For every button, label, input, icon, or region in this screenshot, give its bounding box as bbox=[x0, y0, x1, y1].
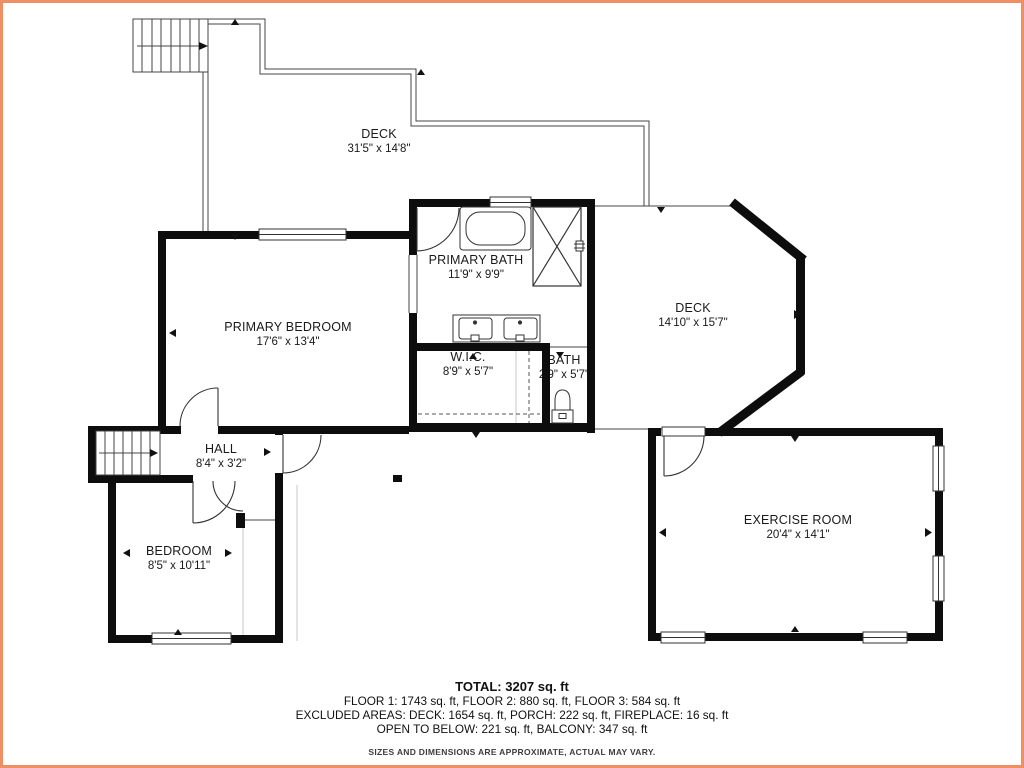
room-label-exercise-room: EXERCISE ROOM 20'4" x 14'1" bbox=[744, 513, 852, 543]
interior-lines bbox=[243, 255, 587, 641]
open-below-areas: OPEN TO BELOW: 221 sq. ft, BALCONY: 347 … bbox=[3, 722, 1021, 736]
room-label-bedroom: BEDROOM 8'5" x 10'11" bbox=[146, 544, 212, 574]
window-icon bbox=[259, 229, 346, 240]
bathtub-icon bbox=[460, 207, 531, 250]
deck-outline bbox=[133, 19, 734, 429]
room-label-deck-right: DECK 14'10" x 15'7" bbox=[658, 301, 727, 331]
stairs-icon bbox=[133, 19, 208, 72]
door-arc-icon bbox=[416, 208, 459, 251]
room-label-wic: W.I.C. 8'9" x 5'7" bbox=[443, 350, 493, 380]
room-name: DECK bbox=[658, 301, 727, 316]
door-arc-icon bbox=[213, 481, 243, 511]
window-icon bbox=[933, 446, 944, 491]
floorplan-drawing bbox=[3, 3, 1024, 768]
door-arc-icon bbox=[180, 388, 218, 426]
room-dims: 14'10" x 15'7" bbox=[658, 316, 727, 331]
room-name: BATH bbox=[539, 353, 589, 368]
door-arc-icon bbox=[193, 481, 235, 523]
window-icon bbox=[661, 632, 705, 643]
room-label-deck-top: DECK 31'5" x 14'8" bbox=[347, 127, 410, 157]
area-summary: TOTAL: 3207 sq. ft FLOOR 1: 1743 sq. ft,… bbox=[3, 679, 1021, 736]
door-arc-icon bbox=[662, 427, 705, 476]
stairs-icon bbox=[96, 431, 160, 475]
disclaimer-text: SIZES AND DIMENSIONS ARE APPROXIMATE, AC… bbox=[3, 747, 1021, 757]
room-dims: 11'9" x 9'9" bbox=[429, 268, 524, 283]
room-name: HALL bbox=[196, 442, 246, 457]
window-icon bbox=[863, 632, 907, 643]
fireplace-marker-icon bbox=[393, 475, 402, 482]
room-name: BEDROOM bbox=[146, 544, 212, 559]
floor-areas: FLOOR 1: 1743 sq. ft, FLOOR 2: 880 sq. f… bbox=[3, 694, 1021, 708]
floorplan-page: DECK 31'5" x 14'8" PRIMARY BATH 11'9" x … bbox=[0, 0, 1024, 768]
window-icon bbox=[152, 633, 231, 644]
door-arc-icon bbox=[283, 435, 321, 473]
deck-angled-walls bbox=[719, 202, 804, 433]
room-dims: 8'5" x 10'11" bbox=[146, 559, 212, 574]
shower-icon bbox=[533, 207, 585, 286]
room-label-primary-bath: PRIMARY BATH 11'9" x 9'9" bbox=[429, 253, 524, 283]
room-label-hall: HALL 8'4" x 3'2" bbox=[196, 442, 246, 472]
room-name: PRIMARY BEDROOM bbox=[224, 320, 352, 335]
room-name: EXERCISE ROOM bbox=[744, 513, 852, 528]
room-name: PRIMARY BATH bbox=[429, 253, 524, 268]
room-name: DECK bbox=[347, 127, 410, 142]
double-vanity-icon bbox=[453, 315, 540, 342]
stairs-direction-arrow-icon bbox=[150, 449, 158, 457]
room-dims: 20'4" x 14'1" bbox=[744, 528, 852, 543]
stairs-direction-arrow-icon bbox=[199, 42, 208, 50]
room-dims: 17'6" x 13'4" bbox=[224, 335, 352, 350]
room-dims: 2'9" x 5'7" bbox=[539, 368, 589, 383]
window-icon bbox=[933, 556, 944, 601]
room-label-primary-bedroom: PRIMARY BEDROOM 17'6" x 13'4" bbox=[224, 320, 352, 350]
room-dims: 31'5" x 14'8" bbox=[347, 142, 410, 157]
excluded-areas: EXCLUDED AREAS: DECK: 1654 sq. ft, PORCH… bbox=[3, 708, 1021, 722]
toilet-icon bbox=[552, 390, 573, 423]
room-label-bath: BATH 2'9" x 5'7" bbox=[539, 353, 589, 383]
room-name: W.I.C. bbox=[443, 350, 493, 365]
windows bbox=[152, 197, 944, 644]
room-dims: 8'4" x 3'2" bbox=[196, 457, 246, 472]
room-dims: 8'9" x 5'7" bbox=[443, 365, 493, 380]
total-area: TOTAL: 3207 sq. ft bbox=[3, 679, 1021, 694]
window-icon bbox=[490, 197, 531, 208]
